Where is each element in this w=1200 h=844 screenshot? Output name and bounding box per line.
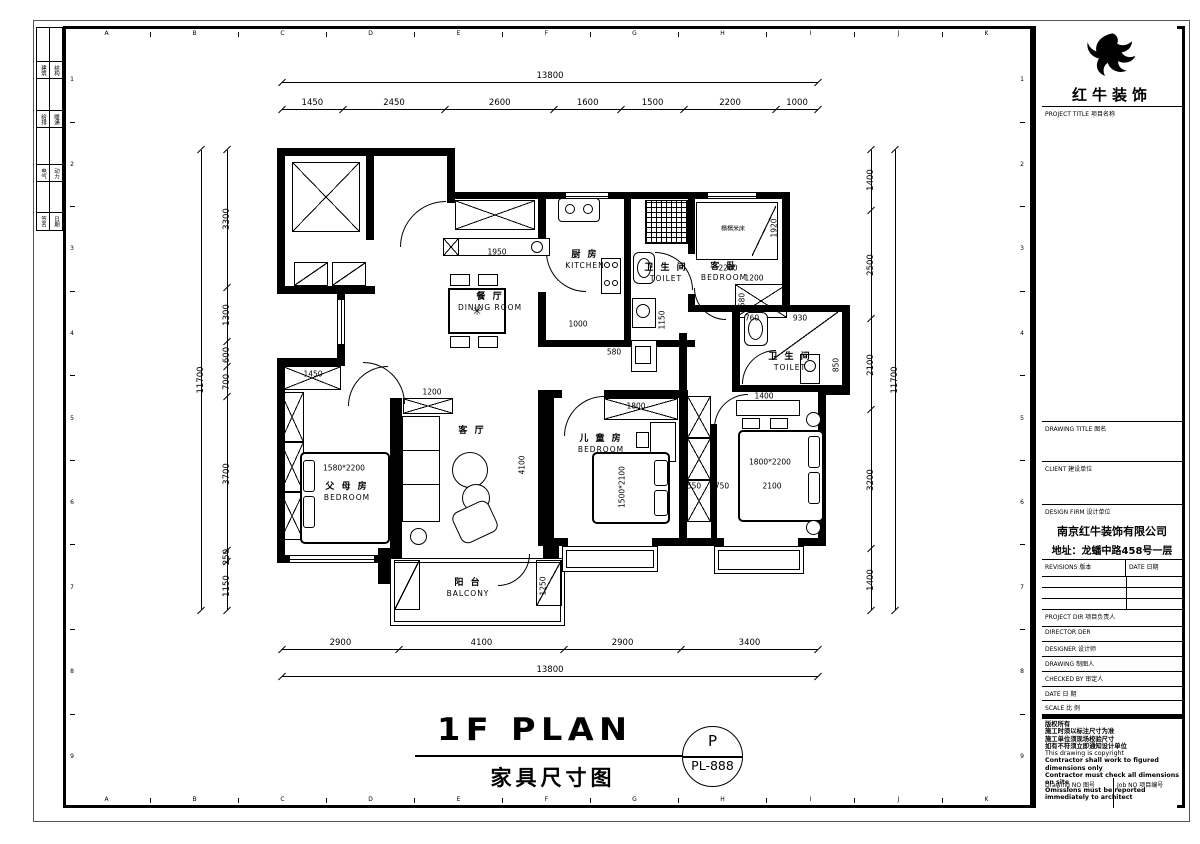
job-no-cell: Job NO 项目编号 (1114, 778, 1166, 808)
drawing-number-stamp: P PL-888 (682, 726, 743, 787)
dim-bottom-segments: 2900 4100 2900 3400 (282, 637, 818, 653)
stamp-letter: P (683, 732, 742, 750)
room-label-dining: 餐 厅DINING ROOM (458, 292, 522, 313)
pillow (654, 490, 668, 516)
room-label-balcony: 阳 台BALCONY (447, 578, 490, 599)
sign-cell: 建筑 (37, 62, 50, 78)
lamp (531, 241, 543, 253)
drawing-no-cell: Drawing NO 图号 (1042, 778, 1114, 808)
master-bay-window (714, 546, 804, 574)
elevator (292, 162, 360, 232)
plan-subtitle: 家具尺寸图 (428, 762, 678, 792)
plant-icon (806, 520, 821, 535)
burner (612, 262, 618, 268)
sign-cell: 签名 (37, 213, 50, 230)
wardrobe (687, 438, 711, 480)
chair (770, 418, 788, 429)
sign-cell: 日期 (50, 213, 62, 230)
firm-address: 地址：龙蟠中路458号一层 (1045, 542, 1179, 557)
master-desk (736, 400, 800, 416)
dining-chair (450, 336, 470, 348)
bed-size-label: 1800*2200 (749, 458, 791, 467)
designer-cell: DESIGNER 设计师 (1042, 642, 1182, 657)
dim-top-total: 13800 (282, 70, 818, 86)
brand-name: 红牛装饰 (1042, 84, 1182, 105)
hall-shoe-cabinet (403, 398, 453, 414)
room-label-kitchen: 厨 房KITCHEN (565, 250, 605, 271)
room-label-living: 客 厅 (458, 426, 485, 437)
dim-right-segments: 1400 2500 2100 3200 1400 (862, 150, 878, 610)
pillow (808, 472, 820, 504)
pillow (303, 496, 315, 528)
sign-cell: 给排 (37, 111, 50, 127)
dim-top-segments: 1450 2450 2600 1600 1500 2200 1000 (282, 97, 818, 113)
burner (604, 280, 610, 286)
sink-bowl (565, 204, 575, 214)
logo-cell: 红牛装饰 (1042, 26, 1182, 107)
sign-cell: 动力 (50, 165, 62, 181)
room-label-toilet-2: 卫 生 间TOILET (768, 352, 811, 373)
elevator-door (332, 262, 366, 286)
dim-left-total: 11700 (192, 150, 208, 610)
sofa (402, 416, 440, 522)
dining-window (337, 300, 345, 344)
bull-logo-icon (1086, 30, 1138, 80)
elevator-door (294, 262, 328, 286)
sign-cell: 暖通 (50, 111, 62, 127)
chair (636, 432, 649, 448)
plan-title: 1F PLAN (437, 712, 632, 748)
dining-chair (450, 274, 470, 286)
design-firm-cell: DESIGN FIRM 设计单位 南京红牛装饰有限公司 地址：龙蟠中路458号一… (1042, 505, 1182, 560)
client-cell: CLIENT 建设单位 (1042, 462, 1182, 505)
room-label-kids-bedroom: 儿 童 房BEDROOM (578, 434, 624, 455)
guest-window (708, 192, 756, 199)
project-dir-cell: PROJECT DIR 项目负责人 (1042, 610, 1182, 627)
plant-icon (806, 412, 821, 427)
hall-cabinet (443, 238, 459, 256)
project-title-cell: PROJECT TITLE 项目名称 (1042, 107, 1182, 422)
dim-bottom-total: 13800 (282, 664, 818, 680)
revisions-table: REVISIONS 版本DATE 日期 (1042, 560, 1182, 610)
scale-cell: SCALE 比 例 (1042, 701, 1182, 715)
drawing-title-cell: DRAWING TITLE 图名 (1042, 422, 1182, 462)
grid-letters-top: ABCDEFGHIJK (63, 28, 1030, 40)
parents-wardrobe (280, 392, 304, 442)
washing-machine (394, 560, 420, 610)
title-block-panel: 红牛装饰 PROJECT TITLE 项目名称 DRAWING TITLE 图名… (1030, 26, 1177, 808)
drawing-sheet: 建筑结构 给排暖通 电气动力 签名日期 ABCDEFGHIJK ABCDEFGH… (0, 0, 1200, 844)
entry-cabinet (455, 200, 535, 230)
parents-window (290, 555, 374, 563)
dim-left-segments: 3300 1300 600 700 3700 250 1150 (218, 150, 234, 610)
burner (612, 280, 618, 286)
pillow (303, 460, 315, 492)
bed-size-label: 1580*2200 (323, 464, 365, 473)
basin (635, 346, 651, 364)
pillow (808, 436, 820, 468)
dim-right-total: 11700 (886, 150, 902, 610)
date-cell: DATE 日 期 (1042, 687, 1182, 701)
tatami-label: 榻榻米床 (721, 224, 745, 233)
sign-cell: 电气 (37, 165, 50, 181)
dining-chair (478, 336, 498, 348)
room-label-toilet-1: 卫 生 间TOILET (644, 263, 687, 284)
copyright-notes: 版权所有 施工时须以标注尺寸为准 施工单位须现场校验尺寸 如有不符须立即通知设计… (1042, 719, 1182, 778)
sign-off-table: 建筑结构 给排暖通 电气动力 签名日期 (36, 27, 63, 231)
basin (636, 304, 650, 318)
chair (742, 418, 760, 429)
grid-numbers-right: 123456789 (1016, 38, 1028, 798)
kids-bay-window (562, 546, 658, 572)
sign-cell: 结构 (50, 62, 62, 78)
stamp-code: PL-888 (683, 758, 742, 773)
floor-lamp (410, 528, 427, 545)
room-label-parents-bedroom: 父 母 房BEDROOM (324, 482, 370, 503)
burner (604, 262, 610, 268)
pillow (654, 460, 668, 486)
coffee-table (452, 452, 488, 488)
sink-bowl (583, 204, 593, 214)
dining-chair (478, 274, 498, 286)
director-cell: DIRECTOR DER (1042, 627, 1182, 642)
bed-size-label: 1500*2100 (618, 466, 627, 508)
grid-numbers-left: 123456789 (66, 38, 78, 798)
number-cells: Drawing NO 图号 Job NO 项目编号 (1042, 778, 1182, 808)
grid-letters-bottom: ABCDEFGHIJK (63, 794, 1030, 806)
wardrobe (687, 396, 711, 438)
shower-area (645, 200, 688, 244)
drawing-by-cell: DRAWING 制图人 (1042, 657, 1182, 672)
checked-by-cell: CHECKED BY 审定人 (1042, 672, 1182, 687)
firm-name: 南京红牛装饰有限公司 (1045, 523, 1179, 539)
